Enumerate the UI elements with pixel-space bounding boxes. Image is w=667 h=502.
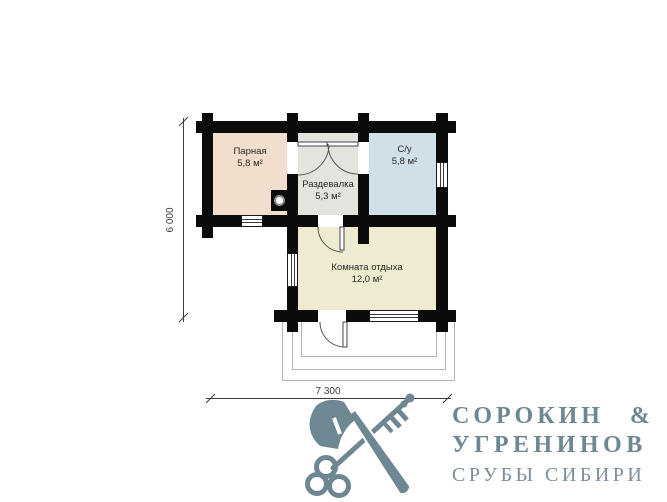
door-opening-entrance <box>318 310 346 322</box>
room-name: С/у <box>371 144 438 156</box>
window-glass-lines <box>291 254 295 286</box>
window-glass-lines <box>440 163 444 187</box>
key-bit-tooth <box>398 410 407 420</box>
wall-left <box>202 113 213 238</box>
room-label-parnaya: Парная 5,8 м² <box>213 146 287 169</box>
room-name: Раздевалка <box>288 179 368 191</box>
door-opening-komnata <box>318 215 343 227</box>
dimension-line-vertical <box>179 117 188 322</box>
key-shaft <box>333 399 409 468</box>
logo-company-line1: СОРОКИН & <box>452 403 652 432</box>
room-label-razdevalka: Раздевалка 5,3 м² <box>288 179 368 202</box>
room-label-komnata: Комната отдыха 12,0 м² <box>298 262 436 285</box>
room-label-su: С/у 5,8 м² <box>371 144 438 167</box>
room-area: 5,8 м² <box>213 158 287 170</box>
wall-top <box>196 121 456 133</box>
axe-head <box>310 400 355 449</box>
key-bow-ring <box>330 477 349 496</box>
logo-text-block: СОРОКИН & УГРЕНИНОВ СРУБЫ СИБИРИ <box>452 403 652 487</box>
stove-icon <box>271 190 288 211</box>
floor-plan-drawing: 6 000 7 300 Парная 5,8 м² Раздевалка 5,3… <box>0 0 667 502</box>
stove-chimney-circle <box>274 195 285 206</box>
room-area: 5,3 м² <box>288 191 368 203</box>
dimension-line-horizontal <box>206 394 452 403</box>
logo-tagline: СРУБЫ СИБИРИ <box>452 464 652 487</box>
porch-step-inner <box>301 322 437 357</box>
key-bow-ring <box>308 475 327 494</box>
room-area: 12,0 м² <box>298 274 436 286</box>
axe-head-slot <box>334 418 340 434</box>
room-area: 5,8 м² <box>371 156 438 168</box>
key-bit-tooth <box>391 417 400 427</box>
window-glass-lines <box>242 219 262 223</box>
window-parnaya <box>241 215 263 227</box>
room-name: Комната отдыха <box>298 262 436 274</box>
window-komnata-bottom <box>369 310 419 322</box>
key-bow-ring <box>317 458 336 477</box>
wall-bottom <box>274 310 456 322</box>
room-razdevalka <box>298 133 358 215</box>
dimension-height-label: 6 000 <box>165 207 176 232</box>
door-opening-su <box>358 142 369 174</box>
logo-company-line2: УГРЕНИНОВ <box>452 432 652 461</box>
key-bit-tooth <box>385 424 392 432</box>
door-opening-parnaya <box>287 142 298 174</box>
crossed-axe-and-key-icon <box>302 392 456 502</box>
room-name: Парная <box>213 146 287 158</box>
window-komnata-left <box>287 253 298 287</box>
window-glass-lines <box>370 314 418 318</box>
axe-handle <box>349 410 411 494</box>
key-knob <box>406 394 415 403</box>
key-collar <box>401 401 408 408</box>
dimension-width-label: 7 300 <box>315 386 340 397</box>
